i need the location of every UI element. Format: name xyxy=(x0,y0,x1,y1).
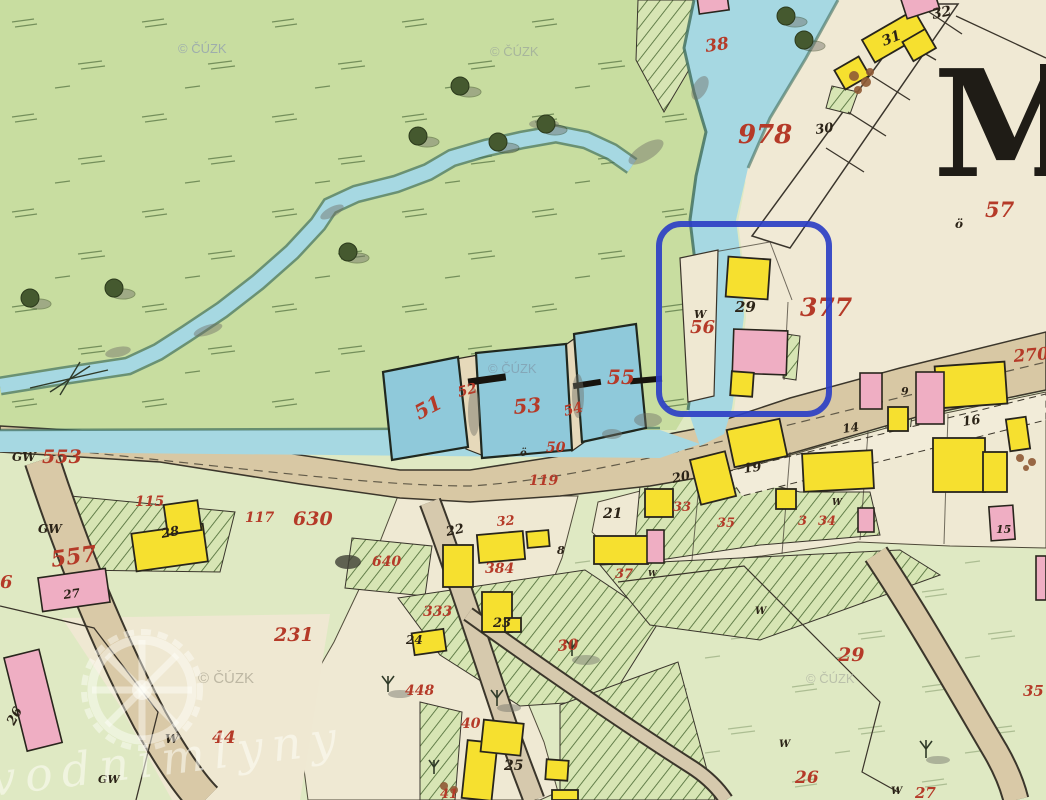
cadastral-map: M 97857377270385551525354505611955355761… xyxy=(0,0,1046,800)
watermark-cuzk-zk: © ČÚZK xyxy=(178,41,227,56)
building xyxy=(802,450,874,492)
parcel-number-3: 3 xyxy=(798,514,807,529)
parcel-number-640: 640 xyxy=(372,554,401,570)
building xyxy=(776,489,796,509)
map-canvas[interactable]: M 97857377270385551525354505611955355761… xyxy=(0,0,1046,800)
place-name-letter: M xyxy=(933,37,1046,211)
place-name-partial-letter xyxy=(1040,64,1046,174)
building xyxy=(481,720,524,756)
watermark-cuzk-zk: © ČÚZK xyxy=(490,44,539,59)
house-number-w: W xyxy=(755,606,768,617)
house-number-w: W xyxy=(891,786,904,797)
house-number-w: W xyxy=(694,308,708,321)
house-number-: ö xyxy=(955,217,963,231)
building xyxy=(732,329,788,375)
house-number-: ö xyxy=(520,448,527,459)
watermark-cuzk-zk: © ČÚZK xyxy=(806,671,855,686)
building xyxy=(726,257,771,300)
building xyxy=(1036,556,1046,600)
building xyxy=(916,372,944,424)
house-number-8: 8 xyxy=(557,544,565,557)
parcel-number-50: 50 xyxy=(546,440,566,456)
parcel-number-41: 41 xyxy=(440,787,458,800)
watermark-cuzk-zk: © ČÚZK xyxy=(198,670,254,687)
building xyxy=(983,452,1007,492)
parcel-number-384: 384 xyxy=(485,561,514,577)
parcel-number-33: 33 xyxy=(673,500,691,515)
building xyxy=(545,759,568,780)
parcel-number-119: 119 xyxy=(529,473,558,489)
house-number-24: 24 xyxy=(405,633,423,647)
house-number-21: 21 xyxy=(602,506,622,522)
parcel-number-57: 57 xyxy=(985,197,1015,222)
parcel-number-115: 115 xyxy=(135,494,164,510)
parcel-number-35: 35 xyxy=(1023,682,1044,700)
building xyxy=(888,407,908,431)
building xyxy=(730,371,754,396)
watermark-cuzk-zk: © ČÚZK xyxy=(488,361,537,376)
parcel-number-37: 37 xyxy=(615,567,633,582)
parcel-number-38: 38 xyxy=(704,34,730,57)
building xyxy=(477,531,525,563)
house-number-29: 29 xyxy=(734,298,756,316)
house-number-gw: GW xyxy=(12,450,37,464)
parcel-number-448: 448 xyxy=(405,683,434,699)
parcel-number-29: 29 xyxy=(837,644,864,666)
parcel-number-27: 27 xyxy=(914,784,936,800)
parcel-number-117: 117 xyxy=(245,510,274,526)
parcel-number-333: 333 xyxy=(423,604,452,620)
building xyxy=(526,530,549,548)
parcel-number-40: 40 xyxy=(461,716,481,732)
building xyxy=(860,373,882,409)
parcel-number-26: 26 xyxy=(794,768,819,788)
parcel-number-55: 55 xyxy=(607,365,635,389)
parcel-number-34: 34 xyxy=(818,514,836,529)
house-number-9: 9 xyxy=(901,385,909,398)
house-number-19: 19 xyxy=(742,460,762,477)
house-number-23: 23 xyxy=(492,616,511,631)
house-number-25: 25 xyxy=(503,758,523,774)
building xyxy=(933,438,985,492)
house-number-gw: GW xyxy=(38,522,63,536)
parcel-number-6: 6 xyxy=(0,572,13,593)
building xyxy=(935,362,1008,409)
parcel-number-30: 30 xyxy=(557,635,580,655)
building xyxy=(1006,417,1030,451)
house-number-w: W xyxy=(779,739,792,750)
building xyxy=(858,508,874,532)
building xyxy=(647,530,664,563)
house-number-w: W xyxy=(648,568,658,578)
building xyxy=(443,545,473,587)
parcel-number-53: 53 xyxy=(512,393,542,419)
house-number-w: W xyxy=(832,498,843,508)
building xyxy=(594,536,648,564)
house-number-27: 27 xyxy=(61,586,81,602)
house-number-14: 14 xyxy=(841,420,859,436)
parcel-number-32: 32 xyxy=(496,513,515,530)
building xyxy=(645,489,673,517)
house-number-15: 15 xyxy=(996,523,1011,536)
parcel-number-978: 978 xyxy=(738,120,792,150)
parcel-number-35: 35 xyxy=(717,516,735,531)
building xyxy=(552,790,578,800)
parcel-number-270: 270 xyxy=(1012,344,1046,367)
house-number-16: 16 xyxy=(961,413,981,430)
house-number-30: 30 xyxy=(814,121,834,138)
parcel-number-231: 231 xyxy=(273,624,314,646)
parcel-number-630: 630 xyxy=(293,508,333,530)
parcel-number-553: 553 xyxy=(42,446,82,468)
